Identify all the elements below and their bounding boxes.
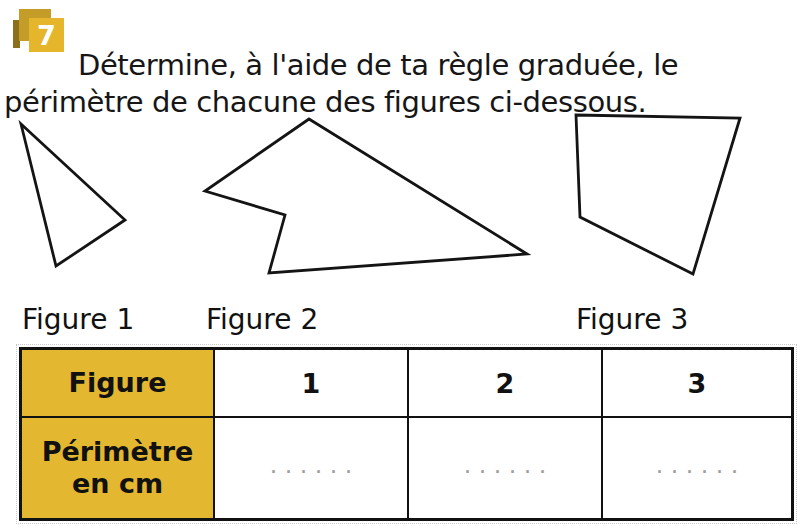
answer-cell-figure-2: ...... xyxy=(409,418,603,518)
answer-cell-figure-3: ...... xyxy=(603,418,791,518)
figure-3-label: Figure 3 xyxy=(576,303,688,336)
table-header-perimeter: Périmètre en cm xyxy=(22,418,215,518)
answer-cell-figure-1: ...... xyxy=(215,418,409,518)
figure-1-label: Figure 1 xyxy=(22,303,134,336)
table-figure-2-cell: 2 xyxy=(409,350,603,418)
table-figure-1-cell: 1 xyxy=(215,350,409,418)
worksheet-page: 7 Détermine, à l'aide de ta règle gradué… xyxy=(0,0,803,529)
figure-3-quadrilateral xyxy=(576,115,740,274)
table-header-figure: Figure xyxy=(22,350,215,418)
figure-1-triangle xyxy=(21,124,125,266)
figure-2-pentagon xyxy=(205,119,527,273)
perimeter-table: Figure 1 2 3 Périmètre en cm ...... ....… xyxy=(19,347,794,521)
figure-2-label: Figure 2 xyxy=(206,303,318,336)
table-figure-3-cell: 3 xyxy=(603,350,791,418)
